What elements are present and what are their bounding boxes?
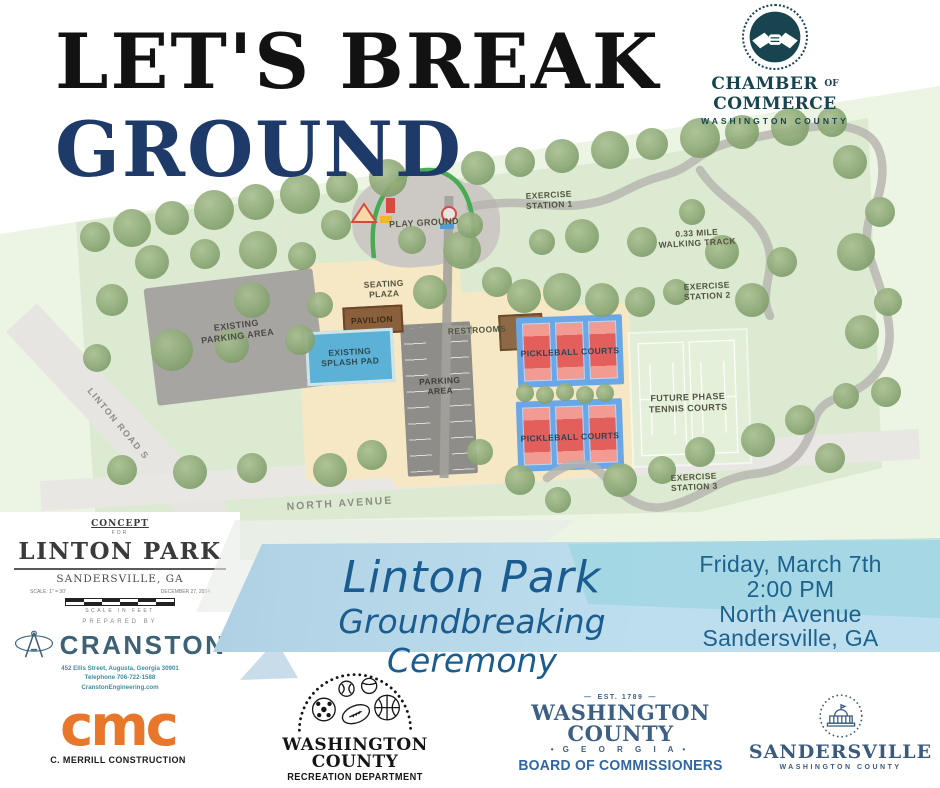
tree: [321, 210, 351, 240]
boc-subtitle: BOARD OF COMMISSIONERS: [503, 758, 738, 774]
headline-line1: LET'S BREAK: [55, 24, 660, 100]
tree: [685, 437, 715, 467]
tree: [398, 226, 426, 254]
tree: [815, 443, 845, 473]
tree: [467, 439, 493, 465]
tree: [767, 247, 797, 277]
tree: [556, 383, 574, 401]
tree: [591, 131, 629, 169]
tree: [113, 209, 151, 247]
tree: [413, 275, 447, 309]
tree: [871, 377, 901, 407]
tree: [357, 440, 387, 470]
tree: [83, 344, 111, 372]
scale-note: SCALE: 1" = 30': [30, 589, 66, 595]
prepared-by: PREPARED BY: [0, 619, 240, 625]
tree: [307, 292, 333, 318]
tree: [565, 219, 599, 253]
parking-area-label: PARKING AREA: [419, 375, 461, 398]
event-details: Friday, March 7th 2:00 PM North Avenue S…: [688, 552, 893, 651]
tree: [313, 453, 347, 487]
concept-for: FOR: [0, 530, 240, 536]
existing-splash-pad-label: EXISTING SPLASH PAD: [320, 345, 379, 368]
tree: [529, 229, 555, 255]
scale-bar: [65, 598, 175, 606]
tree: [516, 384, 534, 402]
tree: [505, 465, 535, 495]
tree: [173, 455, 207, 489]
sandersville-title: SANDERSVILLE: [748, 743, 933, 762]
tree: [461, 151, 495, 185]
event-date: Friday, March 7th: [688, 552, 893, 577]
chamber-county: WASHINGTON COUNTY: [655, 116, 895, 126]
recreation-subtitle: RECREATION DEPARTMENT: [254, 772, 456, 783]
tree: [96, 284, 128, 316]
tree: [545, 487, 571, 513]
tree: [865, 197, 895, 227]
tree: [234, 282, 270, 318]
tree: [190, 239, 220, 269]
cmc-wordmark: cmc: [28, 702, 208, 752]
boc-state: G E O R G I A: [498, 745, 743, 754]
future-tennis-courts-label: FUTURE PHASE TENNIS COURTS: [648, 391, 727, 415]
event-city: Sandersville, GA: [688, 626, 893, 651]
tree: [785, 405, 815, 435]
sports-balls-icon: [289, 668, 421, 734]
tree: [507, 279, 541, 313]
tree: [288, 242, 316, 270]
tree: [194, 190, 234, 230]
concept-title: LINTON PARK: [0, 538, 240, 565]
parking-stripes: [403, 328, 433, 473]
sandersville-logo: SANDERSVILLE WASHINGTON COUNTY: [748, 692, 933, 771]
compass-icon: [14, 629, 54, 661]
event-title: Linton Park: [252, 552, 692, 603]
tree: [135, 245, 169, 279]
event-street: North Avenue: [688, 602, 893, 627]
concept-eyebrow: CONCEPT: [0, 519, 240, 529]
tree: [457, 212, 483, 238]
recreation-title: WASHINGTON COUNTY: [245, 737, 465, 771]
tree: [239, 231, 277, 269]
tree: [151, 329, 193, 371]
tree: [679, 199, 705, 225]
tree: [845, 315, 879, 349]
cranston-address: 452 Ellis Street, Augusta, Georgia 30901…: [0, 664, 240, 692]
tree: [285, 325, 315, 355]
tree: [545, 139, 579, 173]
tree: [603, 463, 637, 497]
cmc-logo: cmc C. MERRILL CONSTRUCTION: [28, 702, 208, 765]
handshake-icon: [742, 4, 808, 70]
plan-date: DECEMBER 27, 2024: [161, 589, 210, 595]
tree: [627, 227, 657, 257]
tree: [874, 288, 902, 316]
walking-track-label: 0.33 MILE WALKING TRACK: [658, 226, 736, 250]
tree: [543, 273, 581, 311]
chamber-wordmark: CHAMBER OF COMMERCE: [655, 74, 895, 114]
tree: [536, 386, 554, 404]
tree: [155, 201, 189, 235]
chamber-of-commerce-logo: CHAMBER OF COMMERCE WASHINGTON COUNTY: [655, 4, 895, 126]
exercise-station-2-label: EXERCISE STATION 2: [683, 280, 731, 303]
cranston-wordmark: CRANSTON: [60, 630, 227, 661]
tree: [735, 283, 769, 317]
tree: [576, 386, 594, 404]
courthouse-icon: [817, 692, 865, 740]
tree: [107, 455, 137, 485]
tree: [837, 233, 875, 271]
divider: [14, 568, 226, 570]
tree: [833, 145, 867, 179]
tree: [625, 287, 655, 317]
tree: [833, 383, 859, 409]
tree: [585, 283, 619, 317]
headline-line2: GROUND: [55, 112, 463, 188]
board-of-commissioners-logo: EST. 1789 WASHINGTON COUNTY G E O R G I …: [498, 694, 743, 774]
seating-plaza-label: SEATING PLAZA: [364, 278, 405, 300]
cmc-name: C. MERRILL CONSTRUCTION: [28, 755, 208, 765]
recreation-dept-logo: WASHINGTON COUNTY RECREATION DEPARTMENT: [245, 668, 465, 783]
exercise-station-1-label: EXERCISE STATION 1: [525, 189, 573, 212]
event-time: 2:00 PM: [688, 577, 893, 602]
tree: [596, 384, 614, 402]
boc-title: WASHINGTON COUNTY: [498, 702, 743, 744]
tree: [80, 222, 110, 252]
exercise-station-3-label: EXERCISE STATION 3: [670, 471, 718, 494]
concept-city: SANDERSVILLE, GA: [0, 573, 240, 585]
tree: [505, 147, 535, 177]
flyer: PLAY GROUNDEXERCISE STATION 10.33 MILE W…: [0, 0, 940, 788]
tree: [237, 453, 267, 483]
tree: [741, 423, 775, 457]
sandersville-subtitle: WASHINGTON COUNTY: [748, 764, 933, 771]
tree: [636, 128, 668, 160]
